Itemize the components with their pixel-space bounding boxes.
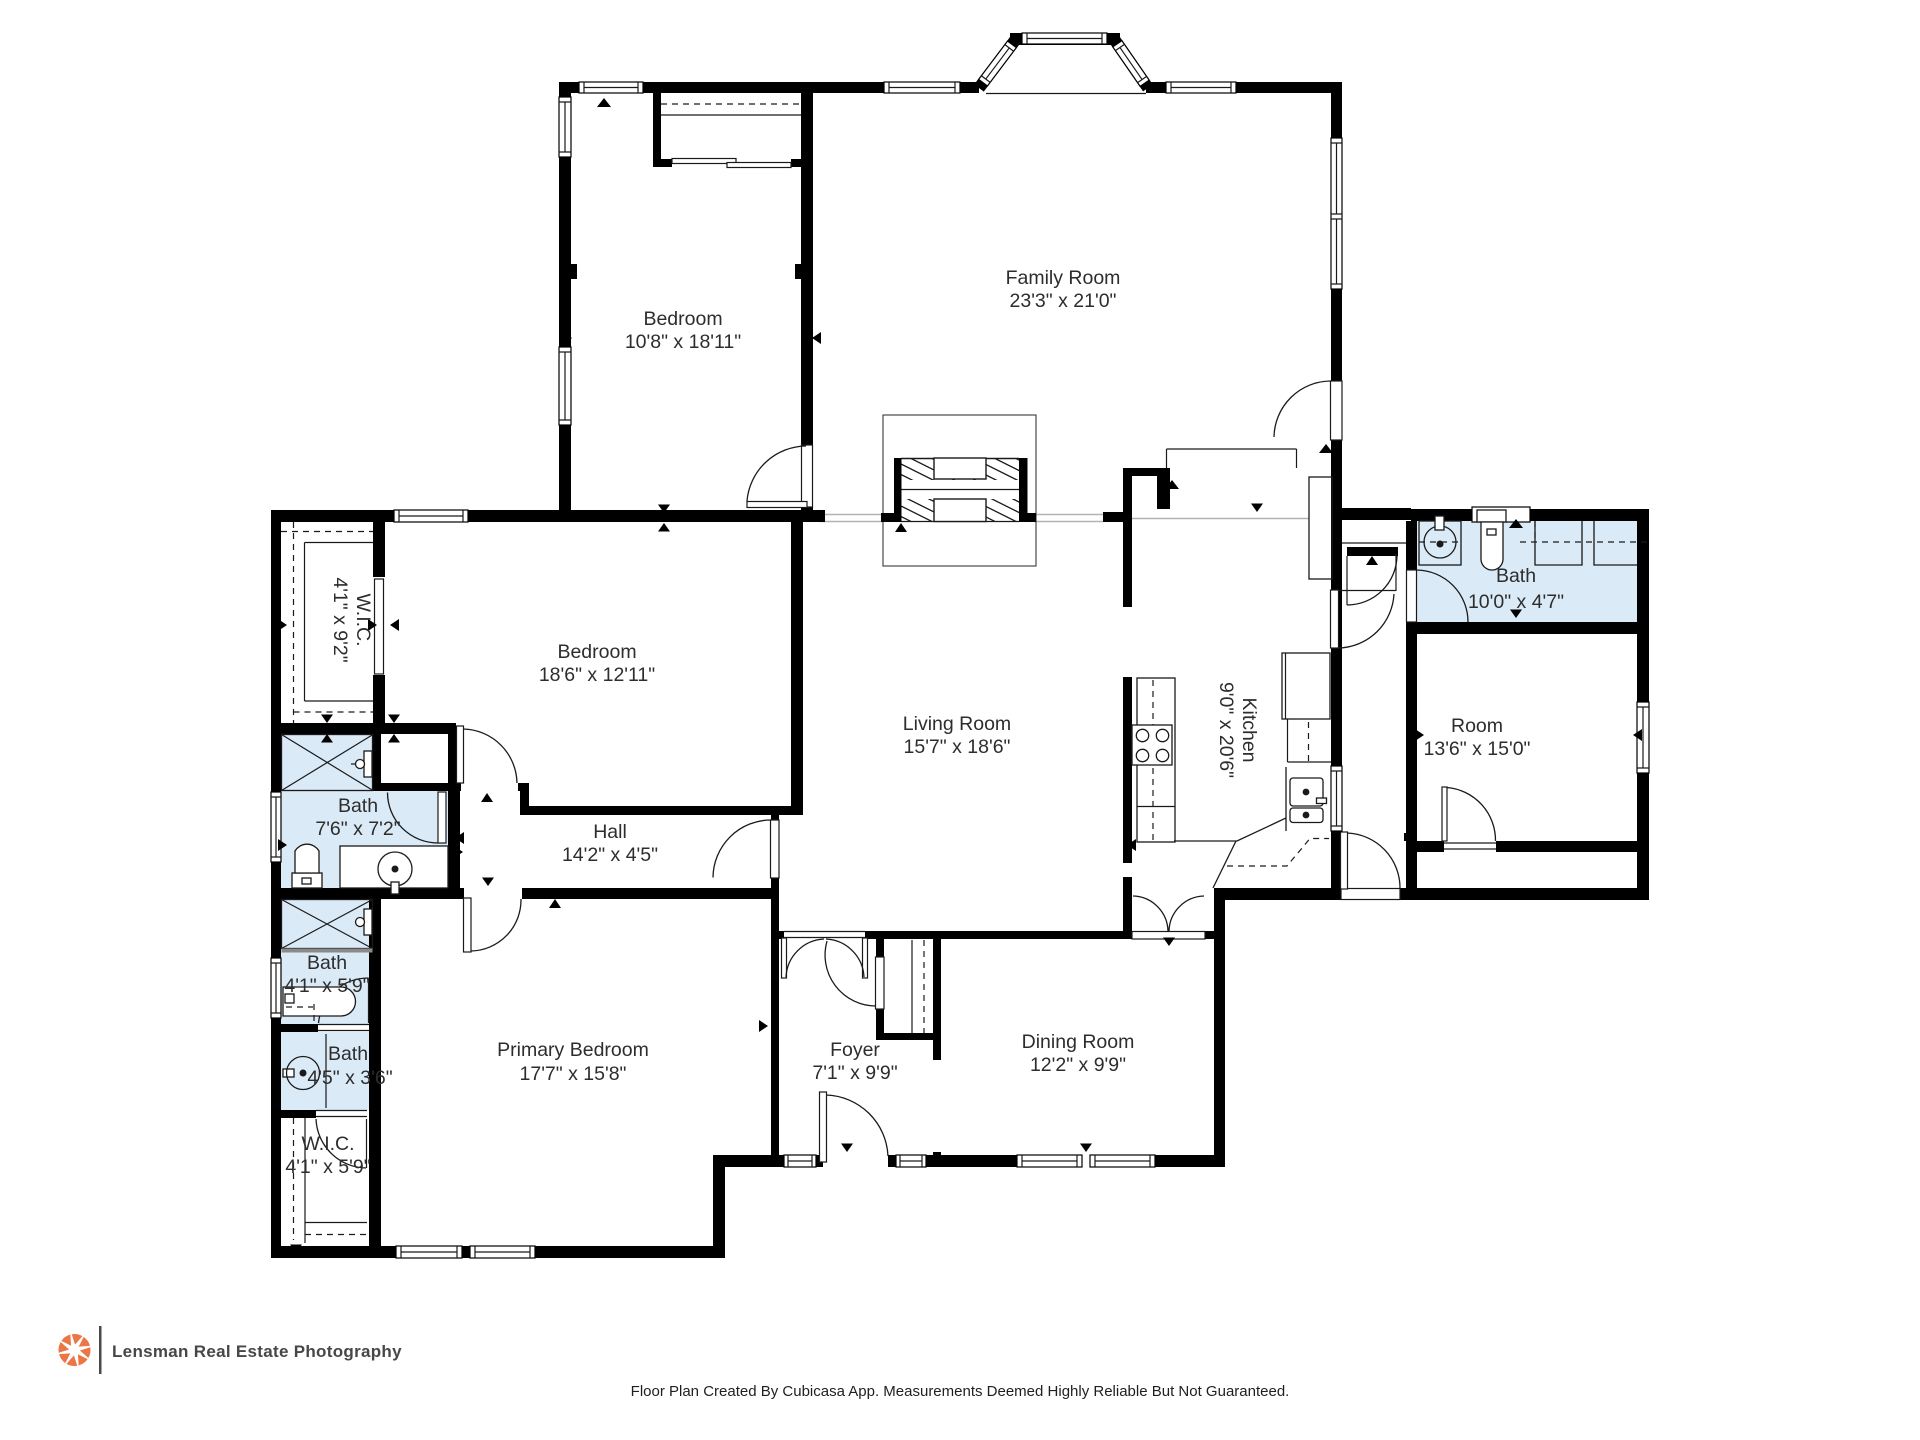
svg-text:Bath: Bath (338, 795, 378, 817)
svg-text:17'7" x 15'8": 17'7" x 15'8" (520, 1063, 627, 1085)
svg-text:7'6" x 7'2": 7'6" x 7'2" (315, 818, 400, 840)
svg-text:10'8" x 18'11": 10'8" x 18'11" (625, 331, 741, 353)
svg-text:Bath: Bath (1496, 565, 1536, 587)
svg-text:13'6" x 15'0": 13'6" x 15'0" (1424, 738, 1531, 760)
svg-text:4'5" x 3'6": 4'5" x 3'6" (307, 1067, 392, 1089)
svg-text:9'0" x 20'6": 9'0" x 20'6" (1215, 682, 1237, 778)
svg-text:Room: Room (1451, 715, 1503, 737)
svg-text:Bedroom: Bedroom (643, 308, 722, 330)
svg-text:Kitchen: Kitchen (1238, 697, 1260, 762)
svg-text:4'1" x 5'9": 4'1" x 5'9" (285, 1156, 370, 1178)
svg-text:Living Room: Living Room (903, 713, 1011, 735)
svg-text:W.I.C.: W.I.C. (352, 593, 374, 646)
svg-text:4'1" x 9'2": 4'1" x 9'2" (329, 577, 351, 662)
svg-text:10'0" x 4'7": 10'0" x 4'7" (1468, 591, 1564, 613)
svg-text:7'1" x 9'9": 7'1" x 9'9" (812, 1062, 897, 1084)
svg-text:Foyer: Foyer (830, 1039, 880, 1061)
svg-text:12'2" x 9'9": 12'2" x 9'9" (1030, 1054, 1126, 1076)
svg-text:15'7" x 18'6": 15'7" x 18'6" (904, 736, 1011, 758)
svg-text:Lensman Real Estate Photograph: Lensman Real Estate Photography (112, 1342, 402, 1361)
svg-text:4'1" x 5'9": 4'1" x 5'9" (284, 975, 369, 997)
svg-text:Floor Plan Created By Cubicasa: Floor Plan Created By Cubicasa App. Meas… (631, 1383, 1290, 1400)
svg-text:Bedroom: Bedroom (557, 641, 636, 663)
svg-text:14'2" x 4'5": 14'2" x 4'5" (562, 844, 658, 866)
svg-text:Dining Room: Dining Room (1022, 1031, 1135, 1053)
svg-text:Primary Bedroom: Primary Bedroom (497, 1039, 649, 1061)
svg-text:W.I.C.: W.I.C. (301, 1133, 354, 1155)
svg-text:Hall: Hall (593, 821, 627, 843)
svg-text:23'3" x 21'0": 23'3" x 21'0" (1010, 290, 1117, 312)
svg-text:Bath: Bath (328, 1043, 368, 1065)
svg-text:Family Room: Family Room (1006, 267, 1121, 289)
svg-text:Bath: Bath (307, 952, 347, 974)
svg-text:18'6" x 12'11": 18'6" x 12'11" (539, 664, 655, 686)
